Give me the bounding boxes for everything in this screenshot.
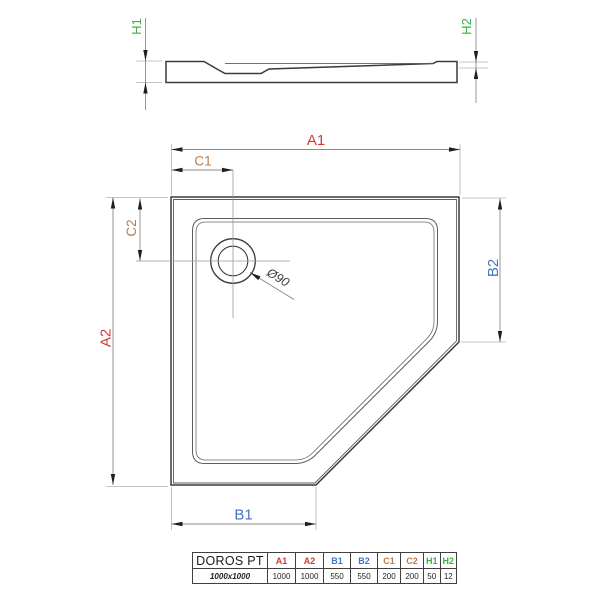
label-a2: A2 [98, 329, 115, 347]
value-a1: 1000 [268, 569, 296, 584]
arrowhead [172, 147, 183, 151]
label-h2: H2 [459, 18, 474, 35]
col-header-h1: H1 [424, 553, 441, 569]
arrowhead [498, 331, 502, 342]
arrowhead [222, 168, 233, 172]
model-size: 1000x1000 [193, 569, 268, 584]
technical-drawing-page: H1 H2 Ø90 [0, 0, 600, 600]
model-name: DOROS PT [193, 553, 268, 569]
spec-table-header-row: DOROS PT A1 A2 B1 B2 C1 C2 H1 H2 [193, 553, 457, 569]
arrowhead [474, 68, 478, 79]
col-header-c2: C2 [401, 553, 424, 569]
col-header-a2: A2 [296, 553, 324, 569]
col-header-c1: C1 [378, 553, 401, 569]
col-header-h2: H2 [440, 553, 457, 569]
arrowhead [143, 83, 147, 94]
label-b1: B1 [234, 507, 252, 524]
value-b2: 550 [351, 569, 378, 584]
dimension-h1: H1 [129, 18, 162, 110]
value-a2: 1000 [296, 569, 324, 584]
dimension-a2: A2 [98, 198, 169, 487]
col-header-b1: B1 [324, 553, 351, 569]
value-c2: 200 [401, 569, 424, 584]
dimension-b2: B2 [461, 198, 506, 342]
value-b1: 550 [324, 569, 351, 584]
dimension-c1: C1 [172, 154, 234, 173]
arrowhead [111, 474, 115, 485]
dimension-h2: H2 [459, 18, 488, 103]
value-h2: 12 [440, 569, 457, 584]
label-c2: C2 [124, 219, 139, 236]
arrowhead [498, 199, 502, 210]
label-a1: A1 [307, 132, 325, 149]
plan-view: Ø90 A1 C1 A2 [98, 132, 507, 530]
arrowhead [138, 199, 142, 210]
value-h1: 50 [424, 569, 441, 584]
spec-table: DOROS PT A1 A2 B1 B2 C1 C2 H1 H2 1000x10… [192, 552, 457, 584]
drawing-svg: H1 H2 Ø90 [0, 0, 600, 600]
label-b2: B2 [485, 259, 502, 277]
label-h1: H1 [129, 18, 144, 35]
arrowhead [138, 250, 142, 261]
label-c1: C1 [194, 154, 211, 169]
arrowhead [172, 168, 183, 172]
arrowhead [143, 50, 147, 61]
arrowhead [172, 522, 183, 526]
tray-plan-outline [171, 197, 459, 485]
dimension-c2: C2 [124, 199, 142, 262]
spec-table-value-row: 1000x1000 1000 1000 550 550 200 200 50 1… [193, 569, 457, 584]
col-header-a1: A1 [268, 553, 296, 569]
dimension-b1: B1 [172, 487, 317, 530]
arrowhead [449, 147, 460, 151]
col-header-b2: B2 [351, 553, 378, 569]
tray-profile-outline [166, 62, 457, 83]
value-c1: 200 [378, 569, 401, 584]
dimension-a1: A1 [172, 132, 461, 195]
arrowhead [474, 51, 478, 62]
side-profile-view: H1 H2 [129, 18, 488, 110]
arrowhead [305, 522, 316, 526]
arrowhead [111, 198, 115, 209]
